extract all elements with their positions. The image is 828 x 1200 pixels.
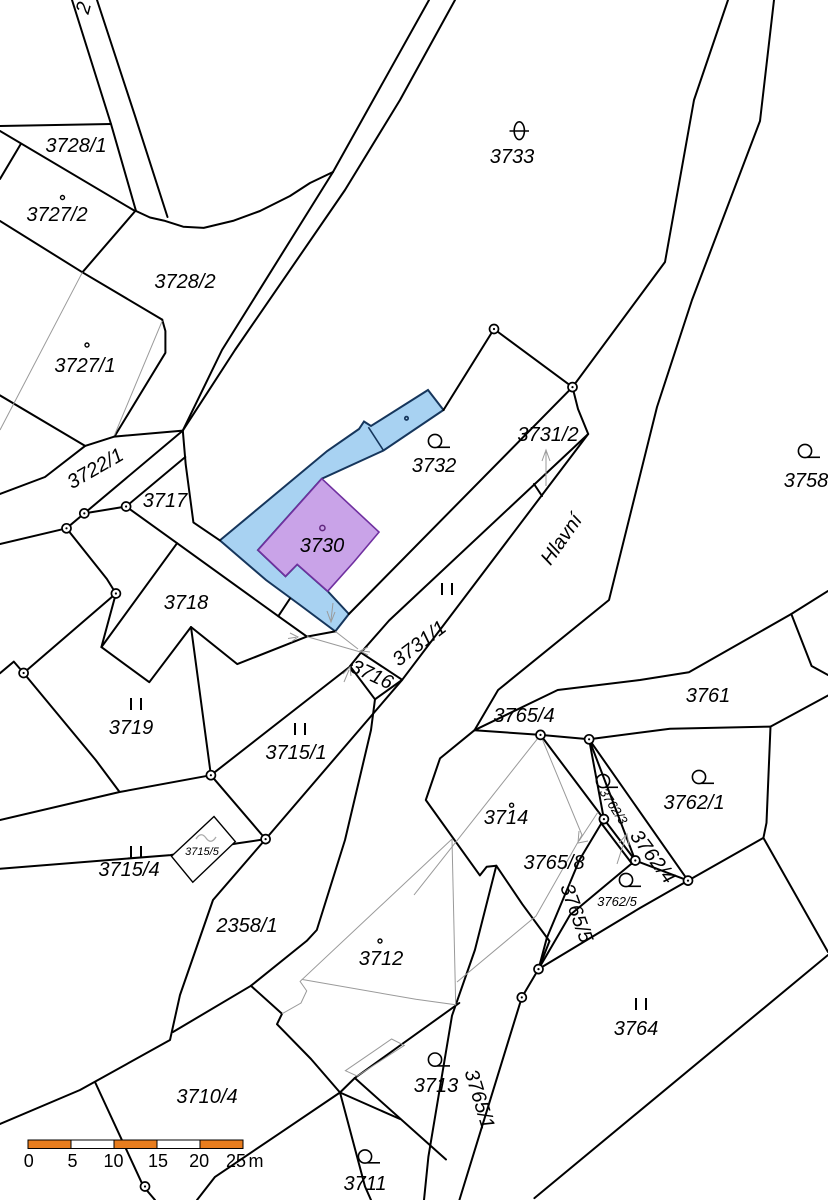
- svg-text:3765/4: 3765/4: [493, 705, 554, 727]
- svg-text:3715/4: 3715/4: [98, 859, 159, 881]
- svg-text:m: m: [249, 1151, 264, 1171]
- svg-text:3733: 3733: [490, 146, 535, 168]
- svg-text:2358/1: 2358/1: [215, 915, 277, 937]
- svg-text:3715/5: 3715/5: [185, 846, 220, 858]
- svg-text:3711: 3711: [343, 1173, 386, 1195]
- svg-text:3732: 3732: [412, 455, 457, 477]
- svg-text:3717: 3717: [143, 490, 188, 512]
- svg-text:3758: 3758: [784, 470, 828, 492]
- svg-text:3728/2: 3728/2: [154, 271, 215, 293]
- svg-text:3713: 3713: [414, 1075, 459, 1097]
- svg-text:20: 20: [189, 1151, 209, 1171]
- svg-text:3730: 3730: [300, 535, 345, 557]
- svg-text:3718: 3718: [164, 592, 209, 614]
- svg-text:3762/5: 3762/5: [597, 894, 638, 909]
- svg-text:3712: 3712: [359, 948, 404, 970]
- svg-text:3714: 3714: [484, 807, 529, 829]
- svg-text:0: 0: [24, 1151, 34, 1171]
- svg-text:3765/8: 3765/8: [523, 852, 584, 874]
- svg-text:10: 10: [103, 1151, 123, 1171]
- svg-text:3715/1: 3715/1: [265, 742, 326, 764]
- svg-text:3710/4: 3710/4: [176, 1086, 237, 1108]
- svg-text:3731/2: 3731/2: [517, 424, 578, 446]
- svg-text:5: 5: [67, 1151, 77, 1171]
- svg-text:15: 15: [148, 1151, 168, 1171]
- svg-text:25: 25: [226, 1151, 246, 1171]
- svg-text:3761: 3761: [686, 685, 731, 707]
- svg-text:3727/2: 3727/2: [26, 204, 87, 226]
- svg-text:3762/1: 3762/1: [663, 792, 724, 814]
- svg-text:3719: 3719: [109, 717, 154, 739]
- svg-text:3728/1: 3728/1: [45, 135, 106, 157]
- svg-text:3764: 3764: [614, 1018, 659, 1040]
- svg-text:3727/1: 3727/1: [54, 355, 115, 377]
